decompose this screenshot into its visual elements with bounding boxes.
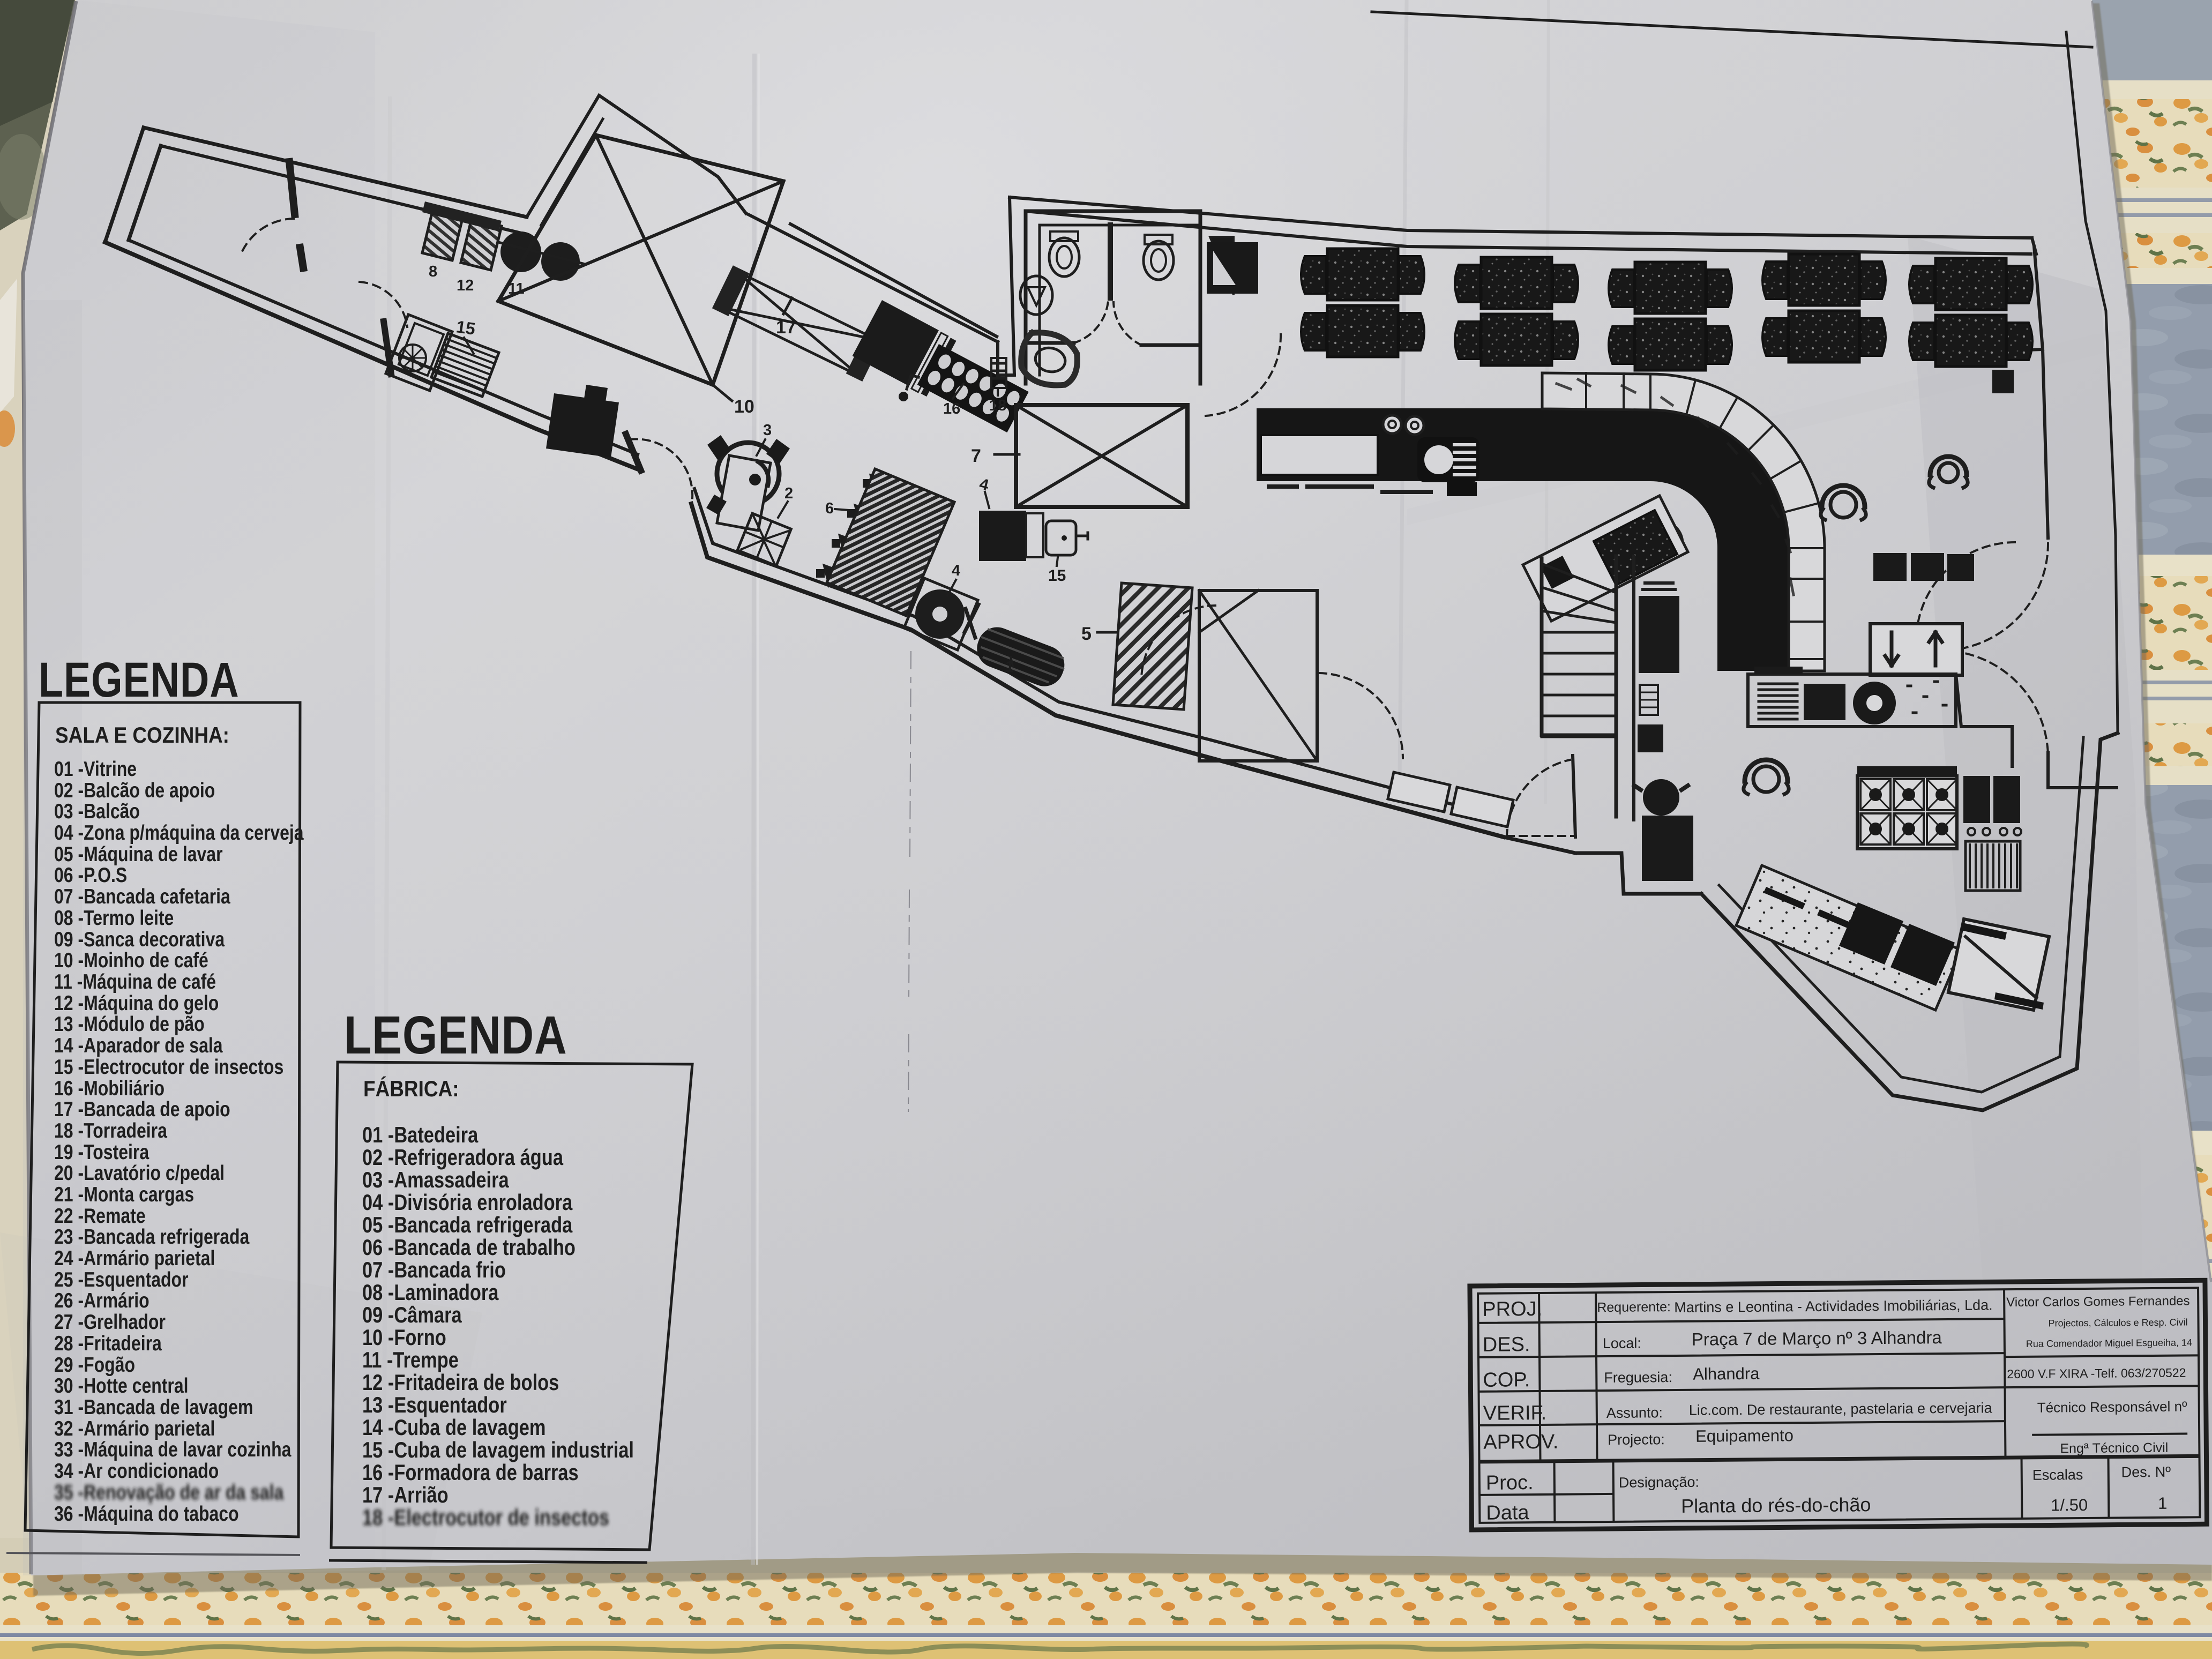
svg-text:22 -Remate: 22 -Remate xyxy=(54,1204,146,1228)
svg-text:Martins e Leontina - Actividad: Martins e Leontina - Actividades Imobili… xyxy=(1674,1297,1993,1316)
svg-text:16: 16 xyxy=(943,400,960,417)
svg-text:10 -Forno: 10 -Forno xyxy=(362,1325,446,1350)
svg-text:16 -Formadora de barras: 16 -Formadora de barras xyxy=(362,1460,579,1485)
svg-text:8: 8 xyxy=(429,263,437,280)
svg-text:09 -Sanca decorativa: 09 -Sanca decorativa xyxy=(54,928,225,951)
svg-text:Praça 7 de Março nº 3 Alhand: Praça 7 de Março nº 3 Alhandra xyxy=(1692,1327,1942,1349)
svg-text:07 -Bancada frio: 07 -Bancada frio xyxy=(362,1258,506,1283)
svg-text:4: 4 xyxy=(952,562,960,579)
svg-text:Requerente:: Requerente: xyxy=(1597,1299,1671,1315)
svg-text:3: 3 xyxy=(763,422,772,439)
svg-text:06 -Bancada de trabalho: 06 -Bancada de trabalho xyxy=(362,1235,576,1260)
svg-text:01 -Vitrine: 01 -Vitrine xyxy=(54,757,137,781)
svg-text:15 -Cuba de lavagem industrial: 15 -Cuba de lavagem industrial xyxy=(362,1438,634,1463)
svg-text:13 -Esquentador: 13 -Esquentador xyxy=(362,1393,507,1418)
svg-text:Designação:: Designação: xyxy=(1619,1474,1699,1491)
svg-text:LEGENDA: LEGENDA xyxy=(39,652,240,707)
svg-text:17: 17 xyxy=(776,317,796,338)
svg-text:35 -Renovação de ar da sala: 35 -Renovação de ar da sala xyxy=(54,1481,284,1504)
svg-text:19 -Tosteira: 19 -Tosteira xyxy=(54,1140,150,1164)
svg-text:Alhandra: Alhandra xyxy=(1693,1364,1760,1384)
svg-text:26 -Armário: 26 -Armário xyxy=(54,1289,150,1312)
svg-text:Des. Nº: Des. Nº xyxy=(2121,1464,2171,1481)
svg-text:17 -Arrião: 17 -Arrião xyxy=(362,1483,449,1508)
svg-text:20 -Lavatório c/pedal: 20 -Lavatório c/pedal xyxy=(54,1161,225,1185)
svg-text:DES.: DES. xyxy=(1483,1333,1530,1356)
svg-text:Técnico Responsável nº: Técnico Responsável nº xyxy=(2037,1398,2187,1415)
svg-text:Engª Técnico Civil: Engª Técnico Civil xyxy=(2060,1440,2168,1456)
svg-text:32 -Armário parietal: 32 -Armário parietal xyxy=(54,1417,215,1440)
svg-text:04 -Divisória enroladora: 04 -Divisória enroladora xyxy=(362,1190,573,1215)
svg-text:Assunto:: Assunto: xyxy=(1606,1404,1663,1421)
svg-text:Planta do rés-do-chão: Planta do rés-do-chão xyxy=(1681,1493,1871,1517)
svg-text:23 -Bancada refrigerada: 23 -Bancada refrigerada xyxy=(54,1225,250,1249)
svg-text:6: 6 xyxy=(825,500,834,517)
svg-text:VERIF.: VERIF. xyxy=(1483,1402,1547,1425)
svg-text:18: 18 xyxy=(989,397,1006,414)
svg-text:05 -Máquina de lavar: 05 -Máquina de lavar xyxy=(54,842,223,866)
svg-text:15: 15 xyxy=(455,317,476,339)
svg-text:COP.: COP. xyxy=(1483,1369,1530,1392)
svg-text:34 -Ar condicionado: 34 -Ar condicionado xyxy=(54,1459,219,1483)
svg-text:01 -Batedeira: 01 -Batedeira xyxy=(362,1123,479,1148)
svg-text:21 -Monta cargas: 21 -Monta cargas xyxy=(54,1183,194,1206)
svg-text:16 -Mobiliário: 16 -Mobiliário xyxy=(54,1077,165,1100)
svg-text:Lic.com. De restaurante, paste: Lic.com. De restaurante, pastelaria e ce… xyxy=(1689,1400,1993,1418)
svg-text:LEGENDA: LEGENDA xyxy=(344,1005,567,1065)
svg-text:12 -Fritadeira de bolos: 12 -Fritadeira de bolos xyxy=(362,1370,559,1395)
svg-text:25 -Esquentador: 25 -Esquentador xyxy=(54,1268,189,1291)
svg-text:18 -Electrocutor de insectos: 18 -Electrocutor de insectos xyxy=(362,1505,609,1530)
svg-text:13 -Módulo de pão: 13 -Módulo de pão xyxy=(54,1012,205,1036)
svg-text:10: 10 xyxy=(734,397,754,417)
svg-text:04 -Zona p/máquina da cerveja: 04 -Zona p/máquina da cerveja xyxy=(54,821,304,845)
svg-text:28 -Fritadeira: 28 -Fritadeira xyxy=(54,1332,162,1355)
svg-text:11 -Máquina de café: 11 -Máquina de café xyxy=(54,970,216,993)
svg-text:12: 12 xyxy=(457,277,474,294)
svg-text:Freguesia:: Freguesia: xyxy=(1604,1369,1672,1386)
svg-text:Equipamento: Equipamento xyxy=(1695,1426,1793,1445)
svg-text:7: 7 xyxy=(971,446,981,466)
svg-text:36 -Máquina do tabaco: 36 -Máquina do tabaco xyxy=(54,1502,239,1526)
svg-text:12 -Máquina do gelo: 12 -Máquina do gelo xyxy=(54,991,219,1015)
svg-text:Victor Carlos Gomes Fernandes: Victor Carlos Gomes Fernandes xyxy=(2006,1294,2190,1310)
svg-text:SALA E COZINHA:: SALA E COZINHA: xyxy=(55,723,229,748)
svg-text:06 -P.O.S: 06 -P.O.S xyxy=(54,863,127,887)
svg-text:Escalas: Escalas xyxy=(2032,1467,2083,1483)
svg-text:17 -Bancada de apoio: 17 -Bancada de apoio xyxy=(54,1097,230,1121)
svg-text:5: 5 xyxy=(1081,624,1092,644)
svg-text:PROJ.: PROJ. xyxy=(1482,1298,1542,1321)
svg-text:03 -Amassadeira: 03 -Amassadeira xyxy=(362,1168,509,1193)
svg-text:15 -Electrocutor de insectos: 15 -Electrocutor de insectos xyxy=(54,1055,283,1079)
svg-text:1: 1 xyxy=(2158,1494,2168,1513)
svg-text:31 -Bancada de lavagem: 31 -Bancada de lavagem xyxy=(54,1395,253,1419)
svg-text:APROV.: APROV. xyxy=(1483,1431,1558,1454)
svg-text:2600 V.F XIRA -Telf. 063/27052: 2600 V.F XIRA -Telf. 063/270522 xyxy=(2007,1366,2186,1381)
svg-text:08 -Laminadora: 08 -Laminadora xyxy=(362,1280,499,1305)
svg-text:24 -Armário parietal: 24 -Armário parietal xyxy=(54,1246,215,1270)
svg-text:03 -Balcão: 03 -Balcão xyxy=(54,799,140,823)
svg-text:Data: Data xyxy=(1486,1501,1529,1525)
svg-text:14 -Aparador de sala: 14 -Aparador de sala xyxy=(54,1034,223,1057)
svg-text:07 -Bancada cafetaria: 07 -Bancada cafetaria xyxy=(54,885,231,908)
svg-text:Rua Comendador Miguel Esgueiha: Rua Comendador Miguel Esgueiha, 14 xyxy=(2026,1337,2192,1349)
svg-text:Projectos, Cálculos e Resp. Ci: Projectos, Cálculos e Resp. Civil xyxy=(2048,1317,2187,1328)
svg-text:30 -Hotte central: 30 -Hotte central xyxy=(54,1374,189,1398)
svg-text:Local:: Local: xyxy=(1603,1335,1641,1351)
svg-text:02 -Refrigeradora água: 02 -Refrigeradora água xyxy=(362,1145,564,1170)
svg-text:08 -Termo leite: 08 -Termo leite xyxy=(54,906,174,930)
svg-text:10 -Moinho de café: 10 -Moinho de café xyxy=(54,948,208,972)
svg-text:Proc.: Proc. xyxy=(1486,1471,1534,1494)
svg-text:02 -Balcão de apoio: 02 -Balcão de apoio xyxy=(54,779,215,802)
svg-text:18 -Torradeira: 18 -Torradeira xyxy=(54,1119,168,1142)
svg-text:29 -Fogão: 29 -Fogão xyxy=(54,1353,135,1377)
svg-text:11 -Trempe: 11 -Trempe xyxy=(362,1348,459,1373)
svg-text:33 -Máquina de lavar cozinha: 33 -Máquina de lavar cozinha xyxy=(54,1438,292,1461)
svg-text:Projecto:: Projecto: xyxy=(1608,1431,1665,1448)
svg-text:27 -Grelhador: 27 -Grelhador xyxy=(54,1310,166,1334)
svg-text:2: 2 xyxy=(784,485,793,502)
svg-text:15: 15 xyxy=(1048,567,1066,585)
svg-text:FÁBRICA:: FÁBRICA: xyxy=(363,1077,459,1102)
svg-text:05 -Bancada refrigerada: 05 -Bancada refrigerada xyxy=(362,1213,573,1238)
svg-text:09 -Câmara: 09 -Câmara xyxy=(362,1303,462,1328)
svg-text:14 -Cuba de lavagem: 14 -Cuba de lavagem xyxy=(362,1415,545,1440)
svg-text:1/.50: 1/.50 xyxy=(2051,1496,2088,1515)
